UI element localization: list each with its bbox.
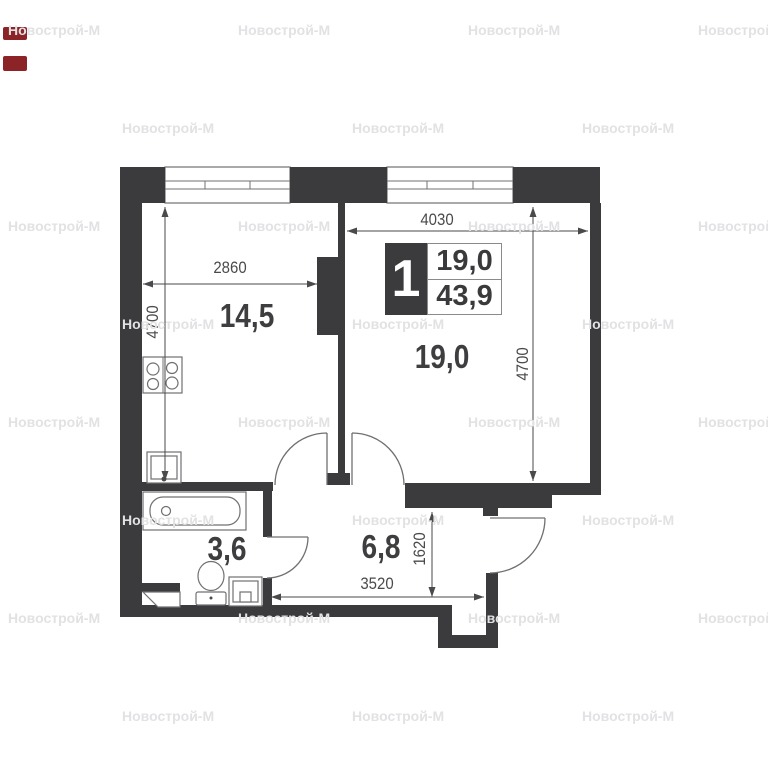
dim-bedroom-depth: 4700 <box>513 347 533 380</box>
floorplan-canvas: 14,5 19,0 3,6 6,8 2860 4700 4030 4700 16… <box>0 0 768 768</box>
dim-hall-depth: 1620 <box>410 532 430 565</box>
room-label-bathroom: 3,6 <box>208 530 247 568</box>
stove-icon <box>143 357 182 393</box>
room-label-kitchen: 14,5 <box>220 297 275 335</box>
room-label-hallway: 6,8 <box>362 528 401 566</box>
dim-hall-width: 3520 <box>360 574 393 594</box>
sink-icon <box>147 452 181 483</box>
floorplan-drawing <box>0 0 768 768</box>
apartment-info-badge: 1 19,0 43,9 <box>385 243 502 315</box>
area-values: 19,0 43,9 <box>427 243 502 315</box>
vent-shaft-icon <box>143 592 180 607</box>
washing-machine-icon <box>229 577 262 606</box>
bathtub-icon <box>143 492 246 530</box>
window-icon <box>165 167 290 203</box>
room-label-bedroom: 19,0 <box>415 338 470 376</box>
dim-bedroom-width: 4030 <box>420 210 453 230</box>
living-area-value: 19,0 <box>428 244 501 280</box>
red-watermark-fragment <box>3 27 27 40</box>
rooms-count-badge: 1 <box>385 243 427 315</box>
red-watermark-fragment <box>3 56 27 71</box>
dim-kitchen-width: 2860 <box>213 258 246 278</box>
total-area-value: 43,9 <box>428 280 501 315</box>
window-icon <box>387 167 513 203</box>
toilet-icon <box>196 562 226 606</box>
dim-kitchen-depth: 4700 <box>143 305 163 338</box>
